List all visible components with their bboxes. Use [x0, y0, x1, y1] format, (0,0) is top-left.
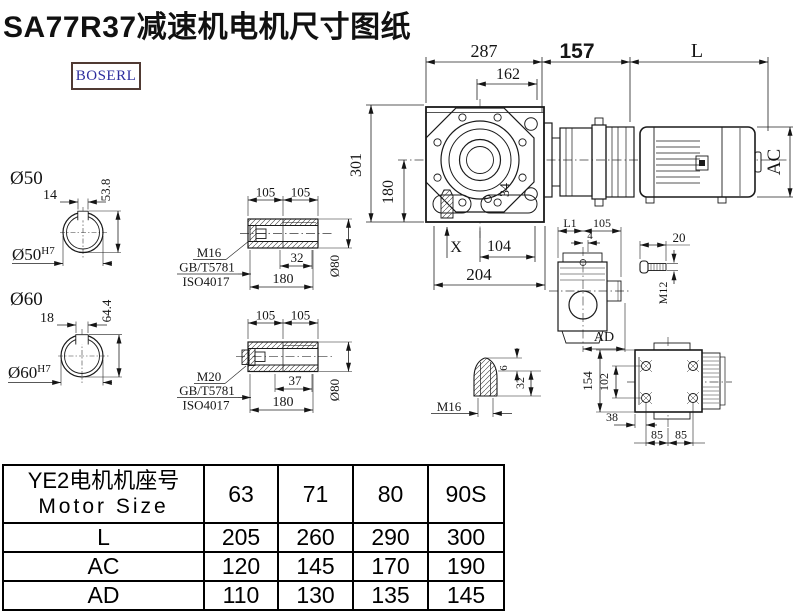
sv-dim-L1: L1: [563, 216, 576, 230]
dim-34: 34: [498, 183, 513, 197]
bolt-thread: M12: [656, 282, 670, 305]
shaft50-label: Ø50: [10, 168, 43, 189]
hollow-shaft-1: 105 105 32 180 Ø80 M16 GB/T5781 ISO4017: [177, 185, 352, 291]
plug-dim-6: 6: [498, 365, 510, 371]
value-AC-80: 170: [353, 552, 428, 581]
dim-162: 162: [496, 66, 520, 83]
sv-dim-AD: AD: [594, 330, 614, 345]
value-AD-71: 130: [278, 581, 353, 610]
hs1-dim-d80: Ø80: [327, 255, 342, 277]
table-header-en: Motor Size: [4, 494, 203, 520]
bolt-dim-20: 20: [673, 230, 686, 245]
hs1-standard-gb: GB/T5781: [179, 260, 235, 275]
brand-logo: BOSERL: [71, 62, 141, 90]
dim-key50-width: 14: [43, 188, 57, 203]
dim-L: L: [691, 40, 703, 62]
plug-dim-32: 32: [513, 377, 527, 389]
value-L-71: 260: [278, 523, 353, 552]
motor-size-80: 80: [353, 465, 428, 523]
dim-50-height: 53.8: [98, 179, 113, 202]
value-L-80: 290: [353, 523, 428, 552]
row-label-AC: AC: [3, 552, 204, 581]
plug-detail: M16 6 32: [431, 348, 541, 417]
hs1-thread: M16: [197, 245, 222, 260]
bore60-label: Ø60H7: [8, 363, 51, 382]
dim-AC: AC: [764, 149, 785, 175]
hs2-dim-37: 37: [289, 373, 303, 388]
tv-dim-154: 154: [580, 371, 595, 391]
front-view-motor: [640, 127, 761, 203]
hs2-dim-105b: 105: [291, 308, 311, 323]
hs1-dim-105a: 105: [256, 185, 276, 200]
side-view: L1 105 4 AD: [549, 216, 631, 352]
bore50-label: Ø50H7: [12, 245, 55, 264]
value-L-63: 205: [204, 523, 278, 552]
shaft-section-50: Ø50 14 53.8 Ø50H7: [10, 168, 121, 266]
motor-size-71: 71: [278, 465, 353, 523]
shaft60-label: Ø60: [10, 289, 43, 310]
tv-dim-38: 38: [606, 410, 618, 424]
hs2-standard-iso: ISO4017: [183, 398, 230, 413]
table-header-row: YE2电机机座号 Motor Size 63 71 80 90S: [3, 465, 504, 523]
hs1-dim-105b: 105: [291, 185, 311, 200]
dim-287: 287: [471, 41, 498, 61]
hs1-dim-32: 32: [291, 250, 304, 265]
tv-dim-85b: 85: [675, 428, 687, 442]
table-row-AD: AD 110 130 135 145: [3, 581, 504, 610]
hs2-dim-105a: 105: [256, 308, 276, 323]
tv-dim-102: 102: [597, 373, 611, 391]
sv-dim-105: 105: [593, 216, 611, 230]
hs1-dim-180: 180: [273, 272, 294, 287]
value-AC-63: 120: [204, 552, 278, 581]
hs2-dim-180: 180: [273, 395, 294, 410]
value-AC-90s: 190: [428, 552, 504, 581]
row-label-AD: AD: [3, 581, 204, 610]
value-AD-90s: 145: [428, 581, 504, 610]
motor-size-table: YE2电机机座号 Motor Size 63 71 80 90S L 205 2…: [2, 464, 505, 611]
page-title: SA77R37减速机电机尺寸图纸: [3, 2, 411, 46]
dim-204: 204: [466, 265, 492, 284]
drawing-page: 287 162 157 L AC 301 180 34 X: [0, 0, 800, 613]
motor-size-90s: 90S: [428, 465, 504, 523]
dim-301: 301: [348, 153, 365, 177]
plug-thread: M16: [437, 399, 462, 414]
hs2-thread: M20: [197, 369, 222, 384]
hs1-standard-iso: ISO4017: [183, 274, 230, 289]
value-AC-71: 145: [278, 552, 353, 581]
sv-dim-4: 4: [587, 230, 593, 242]
table-row-L: L 205 260 290 300: [3, 523, 504, 552]
dim-60-height: 64.4: [99, 299, 114, 322]
value-AD-80: 135: [353, 581, 428, 610]
table-row-AC: AC 120 145 170 190: [3, 552, 504, 581]
dim-X: X: [450, 239, 462, 256]
value-AD-63: 110: [204, 581, 278, 610]
table-header-cn: YE2电机机座号: [4, 468, 203, 494]
hollow-shaft-2: 105 105 37 180 Ø80 M20 GB/T5781 ISO4017: [177, 308, 352, 414]
dim-key60-width: 18: [40, 311, 54, 326]
bolt-detail: 20 M12: [640, 230, 690, 304]
top-view: 154 102 38 85 85: [580, 337, 732, 446]
shaft-section-60: Ø60 18 64.4 Ø60H7: [8, 289, 122, 386]
row-label-L: L: [3, 523, 204, 552]
front-view-adapter: [552, 118, 634, 206]
value-L-90s: 300: [428, 523, 504, 552]
table-header-motor-size: YE2电机机座号 Motor Size: [3, 465, 204, 523]
dim-104: 104: [487, 238, 511, 255]
dim-157: 157: [559, 40, 594, 63]
motor-size-63: 63: [204, 465, 278, 523]
hs2-dim-d80: Ø80: [327, 379, 342, 401]
dim-180: 180: [380, 180, 397, 204]
hs2-standard-gb: GB/T5781: [179, 383, 235, 398]
tv-dim-85a: 85: [651, 428, 663, 442]
